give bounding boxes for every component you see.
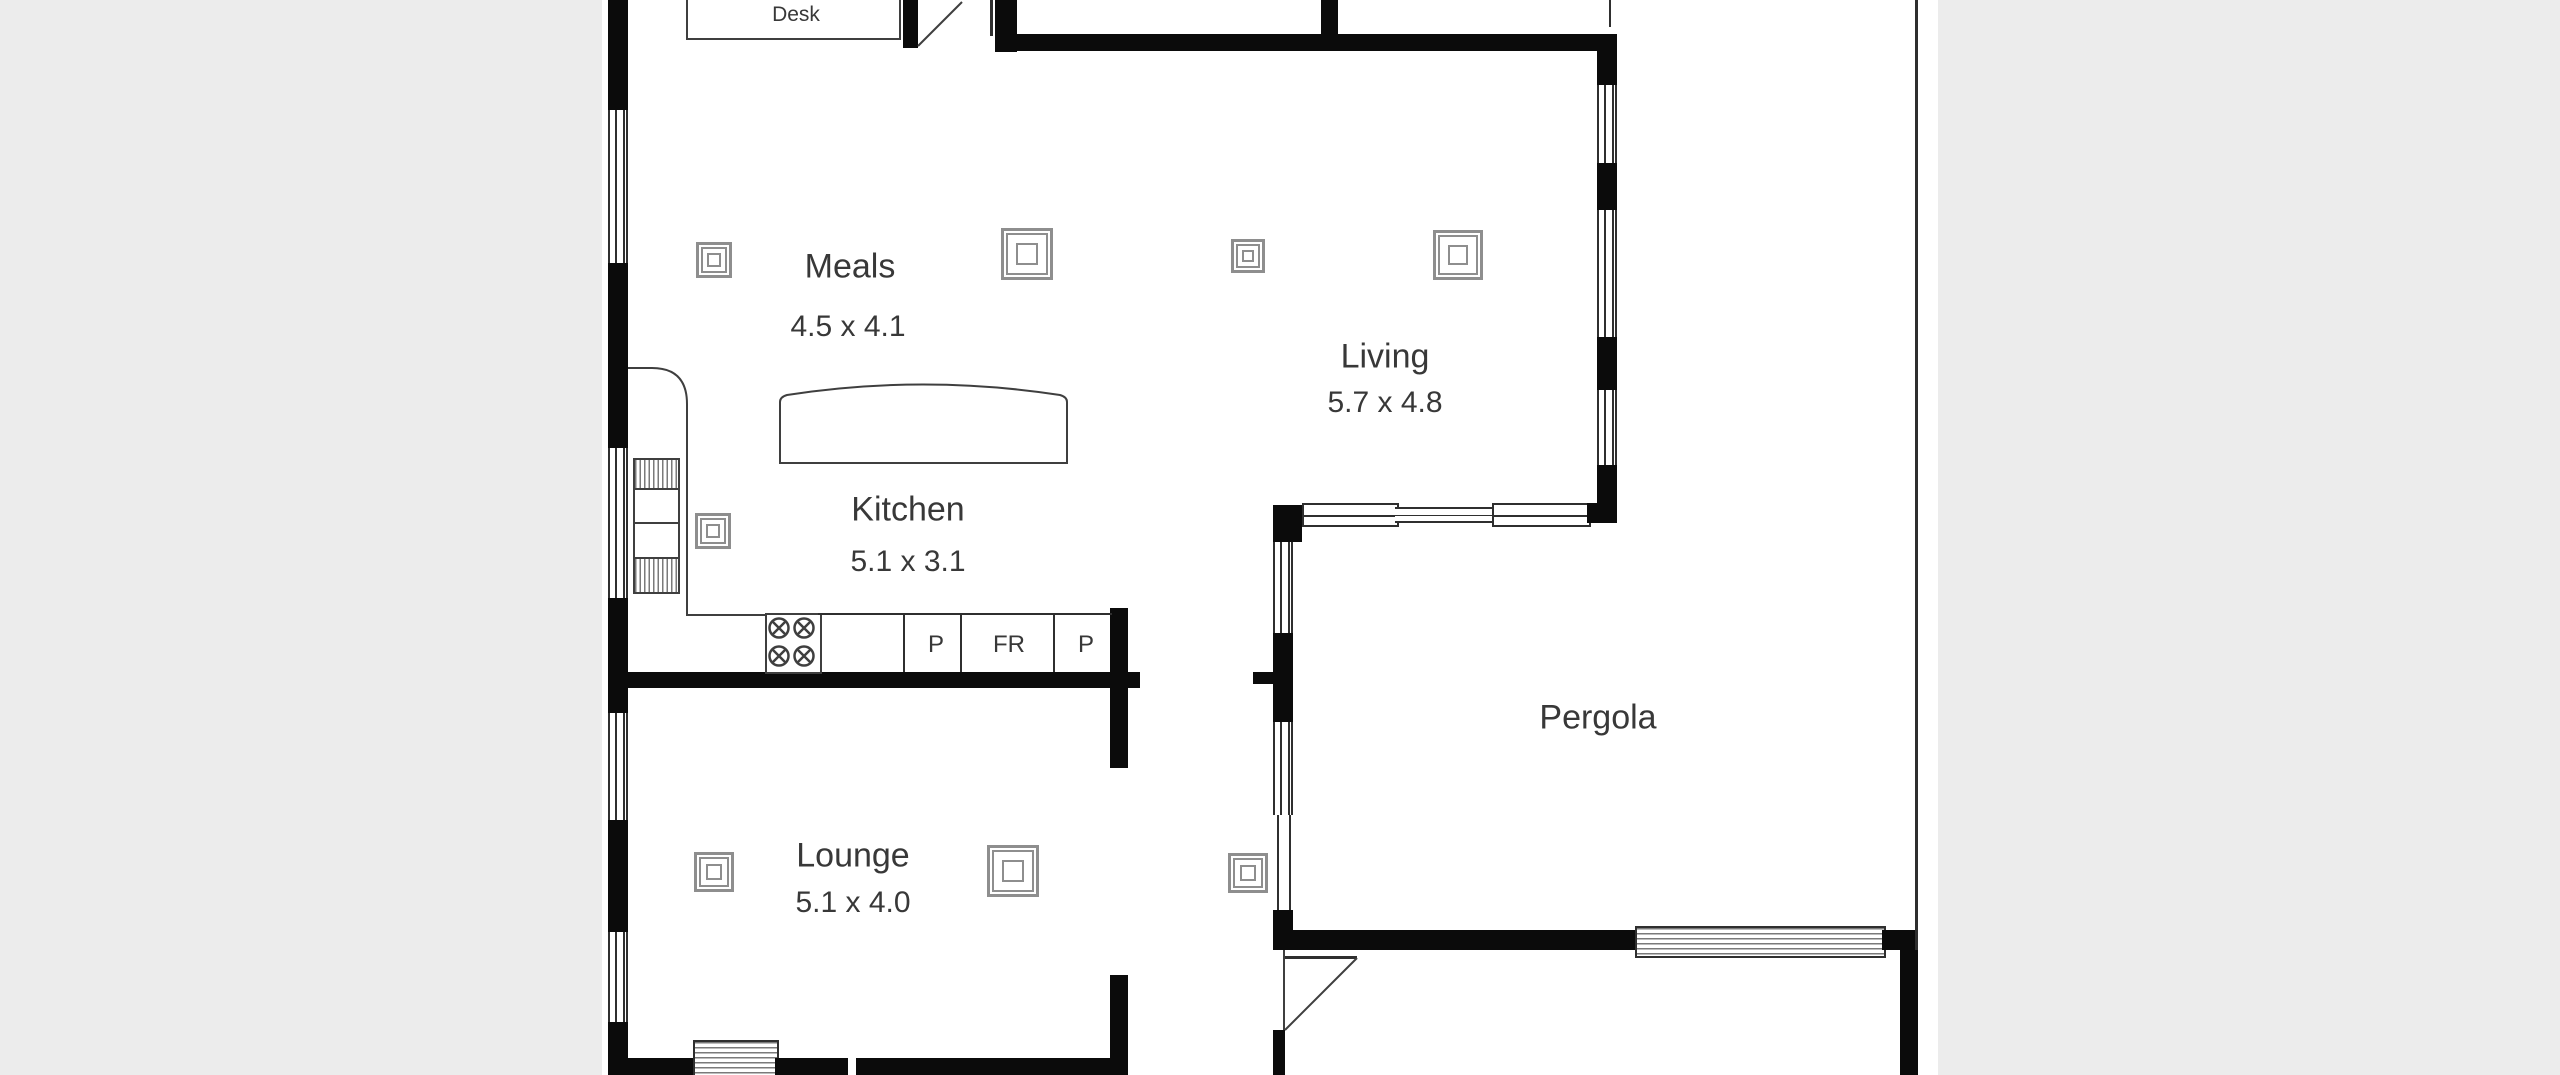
bench-divider xyxy=(960,613,962,672)
pergola-edge-line xyxy=(1915,0,1918,950)
room-label-lounge: Lounge xyxy=(796,837,909,876)
cooktop-icon xyxy=(765,613,822,674)
floor-plan-page: Desk Meals 4.5 x 4.1 Living 5.7 x 4.8 Ki… xyxy=(0,0,2560,1075)
bench-divider xyxy=(1053,613,1055,672)
fixture-label-fridge: FR xyxy=(993,631,1025,659)
ceiling-light-icon xyxy=(694,852,734,892)
window-living-bottom-connector xyxy=(1395,507,1492,523)
ceiling-light-icon xyxy=(1228,853,1268,893)
wall-living-right-1 xyxy=(1597,48,1617,85)
wall-bottom-3 xyxy=(856,1058,1128,1075)
fixture-label-pantry: P xyxy=(928,631,944,659)
wall-left-4 xyxy=(608,820,628,932)
window-living-right-2 xyxy=(1597,210,1617,337)
wall-top-stub xyxy=(1321,0,1338,34)
window-left-2 xyxy=(608,448,628,598)
ceiling-light-icon xyxy=(696,242,732,278)
window-left-3 xyxy=(608,713,628,820)
wall-corner-living-se xyxy=(1587,503,1617,523)
wall-pergola-bottom-right xyxy=(1882,930,1915,950)
wall-living-right-2 xyxy=(1597,163,1617,210)
door-jamb-wall xyxy=(903,0,918,48)
entry-door-line xyxy=(1283,956,1357,959)
window-living-bottom-2 xyxy=(1492,503,1591,527)
wall-bottom-2 xyxy=(775,1058,848,1075)
room-dims-lounge: 5.1 x 4.0 xyxy=(795,886,910,920)
room-label-living: Living xyxy=(1341,338,1430,377)
wall-right-lower xyxy=(1900,950,1918,1075)
ceiling-light-icon xyxy=(1001,228,1053,280)
window-living-bottom-1 xyxy=(1302,503,1399,527)
wall-left-3 xyxy=(608,598,628,713)
wall-left-1 xyxy=(608,0,628,110)
window-left-4 xyxy=(608,932,628,1022)
room-label-pergola: Pergola xyxy=(1539,699,1656,738)
appliance-tower-bottom-icon xyxy=(633,557,680,594)
bench-front-line xyxy=(818,613,1112,615)
wall-divider-1 xyxy=(1273,633,1293,722)
wall-pergola-bottom xyxy=(1273,930,1635,950)
entry-door-stub xyxy=(1273,1030,1285,1075)
ceiling-light-icon xyxy=(695,513,731,549)
room-dims-kitchen: 5.1 x 3.1 xyxy=(850,545,965,579)
window-divider-3 xyxy=(1277,815,1291,910)
door-frame-line xyxy=(990,0,993,36)
room-label-kitchen: Kitchen xyxy=(851,491,964,530)
wall-living-right-3 xyxy=(1597,337,1617,390)
wall-lounge-right-upper xyxy=(1110,608,1128,768)
window-living-right-3 xyxy=(1597,390,1617,465)
room-dims-living: 5.7 x 4.8 xyxy=(1327,386,1442,420)
window-divider-1 xyxy=(1273,542,1293,633)
wall-kitchen-bottom xyxy=(609,672,1140,688)
bench-divider xyxy=(903,613,905,672)
fixture-label-pantry: P xyxy=(1078,631,1094,659)
appliance-tower-top-icon xyxy=(633,458,680,490)
ceiling-light-icon xyxy=(1231,239,1265,273)
room-label-desk: Desk xyxy=(772,3,820,27)
wall-left-2 xyxy=(608,263,628,448)
ceiling-light-icon xyxy=(987,845,1039,897)
room-label-meals: Meals xyxy=(805,248,896,287)
window-bottom xyxy=(693,1040,779,1075)
wall-walkway-stub xyxy=(1253,672,1273,684)
wall-top xyxy=(995,34,1617,51)
ceiling-light-icon xyxy=(1433,230,1483,280)
window-pergola-bottom xyxy=(1635,926,1886,958)
window-left-1 xyxy=(608,110,628,263)
window-living-right-1 xyxy=(1597,85,1617,163)
oven-icon xyxy=(633,488,680,524)
room-dims-meals: 4.5 x 4.1 xyxy=(790,310,905,344)
window-divider-2 xyxy=(1273,722,1293,815)
oven-icon xyxy=(633,522,680,559)
wall-corner-living-sw xyxy=(1273,505,1302,542)
wall-bottom-1 xyxy=(609,1058,693,1075)
wall-above-line xyxy=(1609,0,1611,27)
